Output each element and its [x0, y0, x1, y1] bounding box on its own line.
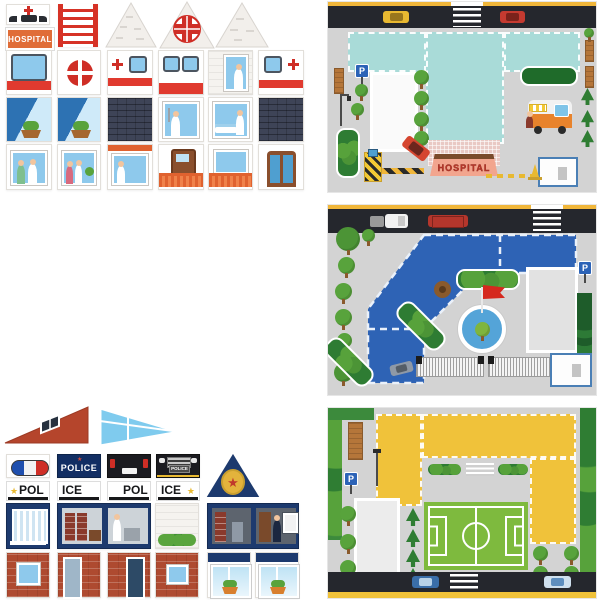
parking-area: [526, 267, 578, 353]
parking-sign: P: [344, 472, 358, 486]
hospital-sign-piece[interactable]: HOSPITAL: [6, 28, 54, 50]
building-zone[interactable]: [422, 414, 576, 458]
bench: [348, 422, 363, 460]
red-cross-icon: [288, 59, 299, 70]
building-zone[interactable]: [426, 32, 504, 144]
construction-barrier: [364, 152, 382, 182]
hospital-map[interactable]: P HOSPITAL: [328, 2, 596, 192]
green-verge: [580, 408, 596, 572]
tree: [335, 309, 352, 326]
bush: [362, 229, 375, 242]
soccer-field: [424, 502, 528, 570]
cone-barrier: [486, 174, 532, 178]
pine-tree: [581, 130, 594, 147]
visitor-figure: [66, 166, 73, 184]
corridor-window-piece[interactable]: [107, 144, 153, 190]
bush: [584, 28, 594, 38]
dark-brick-wall-piece[interactable]: [258, 97, 304, 142]
planter-pot: [21, 130, 41, 138]
planter-bush: [73, 121, 89, 131]
police-map[interactable]: P: [328, 205, 596, 395]
atrium-glass-piece[interactable]: [6, 97, 52, 142]
tree: [564, 546, 579, 561]
window: [11, 54, 47, 81]
green-verge: [328, 408, 342, 540]
nurse-figure: [117, 166, 125, 185]
doctor-window-piece[interactable]: [158, 97, 204, 142]
parking-sign: P: [578, 261, 592, 275]
pine-tree: [406, 549, 420, 567]
red-car-top-view: [500, 11, 525, 23]
hospital-canopy-label: HOSPITAL: [438, 163, 491, 173]
tree: [340, 534, 356, 550]
blue-car-top-view: [412, 576, 439, 588]
lamp-post: [340, 94, 342, 126]
nurse-figure: [234, 69, 243, 89]
crosswalk: [450, 574, 478, 591]
entrance-mat: [550, 353, 592, 387]
pine-tree: [581, 110, 594, 127]
hedge: [498, 464, 528, 475]
parking-area: [354, 498, 400, 582]
cross-emblem-piece[interactable]: [57, 50, 101, 95]
roof-gable-piece[interactable]: [216, 3, 268, 47]
balcony-railing: [209, 173, 252, 187]
red-cross-icon: [112, 59, 123, 70]
roof-gable-piece[interactable]: [106, 3, 156, 47]
nurse-window-piece[interactable]: [208, 50, 253, 95]
school-map[interactable]: P: [328, 408, 596, 598]
tree: [414, 112, 429, 127]
staff-window-piece[interactable]: [6, 144, 52, 190]
door-balcony-piece[interactable]: [158, 144, 204, 190]
police-sheet: ★ POLICE POLICE ★ ★ POL ICE P: [0, 200, 320, 400]
stripe-barrier: [382, 168, 424, 174]
hospital-bed: [215, 124, 237, 133]
tree: [340, 506, 356, 522]
pine-tree: [406, 529, 420, 547]
bench: [334, 68, 344, 94]
ladder-piece[interactable]: [58, 4, 98, 47]
bench: [585, 40, 594, 62]
window: [214, 150, 248, 174]
fence-gate: [488, 357, 556, 377]
red-cross-emblem-icon: [174, 16, 200, 42]
ambulance-side-piece[interactable]: [107, 50, 153, 95]
double-door: [267, 151, 296, 187]
taxi-top-view: [383, 11, 409, 23]
window-balcony-piece[interactable]: [208, 144, 253, 190]
hospital-sign-label: HOSPITAL: [8, 35, 52, 44]
window: [129, 56, 147, 73]
atrium-glass-piece[interactable]: [57, 97, 101, 142]
parking-sign: P: [355, 64, 369, 78]
hedge: [428, 464, 461, 475]
balcony-railing: [159, 173, 203, 187]
pine-tree: [581, 88, 594, 105]
ambulance-side-piece[interactable]: [158, 50, 204, 95]
doctor-figure: [236, 115, 244, 135]
roof-gable-cross-piece[interactable]: [160, 2, 214, 48]
ambulance-back-window-piece[interactable]: [6, 50, 52, 95]
indoor-plant: [85, 167, 94, 176]
well-planter: [434, 281, 451, 298]
tree: [335, 283, 352, 300]
fence-gate: [416, 357, 484, 377]
tree: [533, 546, 548, 561]
paramedic-figure: [526, 116, 533, 128]
ambulance-van: [526, 94, 574, 138]
light-car-top-view: [544, 576, 571, 588]
pine-tree: [406, 508, 420, 526]
tree: [414, 91, 429, 106]
lamp-post: [376, 452, 378, 486]
entrance-door-piece[interactable]: [258, 144, 304, 190]
entrance-mat: [538, 157, 578, 187]
red-cross-icon: [24, 6, 33, 15]
building-zone[interactable]: [530, 458, 576, 544]
traffic-cone-icon: [528, 164, 542, 180]
school-sheet: SCHOOL: [0, 400, 320, 600]
nurse-figure: [28, 164, 37, 184]
tree: [414, 70, 429, 85]
ambulance-cab-piece[interactable]: [6, 4, 50, 25]
green-verge: [328, 408, 374, 420]
planter-bush: [23, 121, 39, 131]
playset-sheet: HOSPITAL: [0, 0, 600, 600]
planter-pot: [71, 130, 91, 138]
hospital-canopy-sign: HOSPITAL: [430, 154, 498, 176]
crosswalk: [453, 8, 481, 27]
visitor-figure: [75, 165, 82, 184]
tree: [336, 227, 360, 251]
reception-window-piece[interactable]: [57, 144, 101, 190]
window: [163, 56, 180, 72]
ambulance-side-piece[interactable]: [258, 50, 304, 95]
dark-brick-wall-piece[interactable]: [107, 97, 153, 142]
patient-bed-window-piece[interactable]: [208, 97, 253, 142]
building-zone[interactable]: [376, 414, 422, 506]
nurse-figure: [17, 165, 25, 184]
tree: [338, 257, 355, 274]
window: [182, 56, 199, 72]
bush: [351, 103, 364, 116]
entrance-steps: [466, 463, 494, 476]
doctor-figure: [171, 116, 180, 137]
flag-pole: [481, 287, 483, 313]
bush: [355, 84, 368, 97]
fountain-bush: [475, 322, 490, 337]
window: [264, 56, 282, 73]
hospital-sheet: HOSPITAL: [0, 0, 320, 200]
hedge: [336, 128, 360, 178]
bench: [585, 66, 594, 88]
hedge: [520, 66, 578, 86]
